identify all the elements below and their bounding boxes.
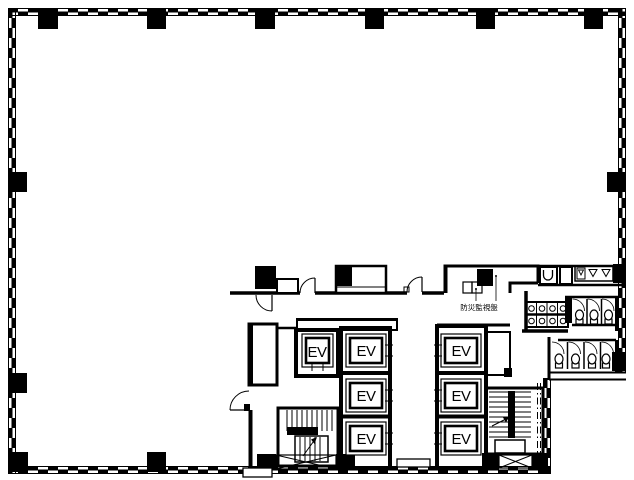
elevator-label: EV [356,343,376,360]
toilet [576,310,584,324]
column [9,373,27,393]
building-footprint [8,8,626,474]
column [255,266,276,289]
column [584,9,603,29]
elevator-label: EV [451,343,471,360]
elevator: EV [434,379,481,412]
toilet [588,354,596,368]
column [365,9,384,29]
toilet [605,310,613,324]
elevator-label: EV [356,388,376,405]
column [612,352,626,371]
elevator: EV [346,379,393,412]
shaft-room-top [336,266,386,293]
elevator-label: EV [451,388,471,405]
cleaner-sink [540,267,557,284]
duct-room-top-left [277,279,298,293]
column [38,9,58,29]
washstand-counter [526,302,568,327]
toilet [555,354,563,368]
disaster-panel-label: 防災監視盤 [460,302,498,312]
elevator-label: EV [451,431,471,448]
column [147,9,166,29]
elevator: EV [346,422,393,455]
elevator-label: EV [356,431,376,448]
disaster-panel-equipment [477,269,493,286]
column [9,452,28,472]
floor-plan-page: 防災監視盤 [0,0,634,480]
elevator: EV [302,334,333,371]
column [147,452,166,472]
toilet [572,354,580,368]
column [607,172,626,192]
floor-plan-svg: 防災監視盤 [0,0,634,480]
service-box [560,267,572,284]
column [9,172,27,192]
toilet [590,310,598,324]
elevator: EV [434,334,481,367]
elevator: EV [346,334,393,367]
column [476,9,495,29]
column [255,9,275,29]
elevator: EV [434,422,481,455]
elevator-label: EV [307,344,327,361]
toilet [602,354,610,368]
column [532,453,548,470]
